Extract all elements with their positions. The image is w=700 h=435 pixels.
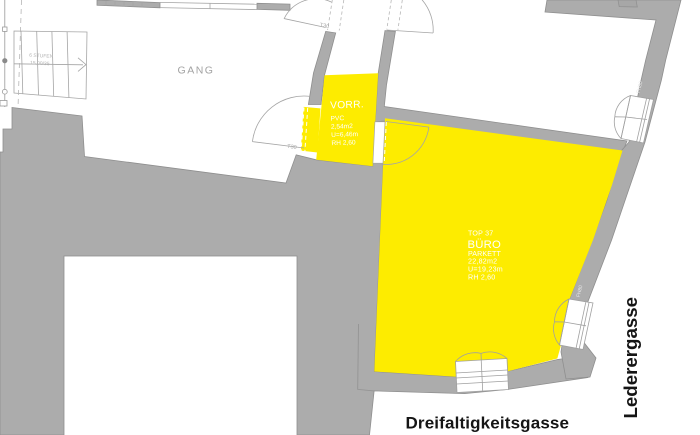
- svg-text:RH 2,60: RH 2,60: [468, 273, 495, 281]
- svg-text:6 STUFEN: 6 STUFEN: [29, 53, 54, 60]
- svg-text:Dreifaltigkeitsgasse: Dreifaltigkeitsgasse: [406, 413, 570, 432]
- svg-text:22,82m2: 22,82m2: [468, 257, 497, 265]
- svg-text:2,54m2: 2,54m2: [331, 123, 354, 131]
- svg-text:U=6,46m: U=6,46m: [331, 131, 359, 139]
- svg-text:TOP 37: TOP 37: [468, 230, 493, 238]
- svg-text:U=19,23m: U=19,23m: [468, 266, 503, 274]
- svg-text:VORR.: VORR.: [330, 99, 364, 111]
- svg-text:PVC: PVC: [330, 115, 344, 122]
- svg-text:GANG: GANG: [178, 65, 215, 77]
- svg-text:RH 2,60: RH 2,60: [331, 139, 356, 147]
- svg-text:Lederergasse: Lederergasse: [620, 297, 641, 419]
- svg-text:15,00/35: 15,00/35: [30, 60, 50, 67]
